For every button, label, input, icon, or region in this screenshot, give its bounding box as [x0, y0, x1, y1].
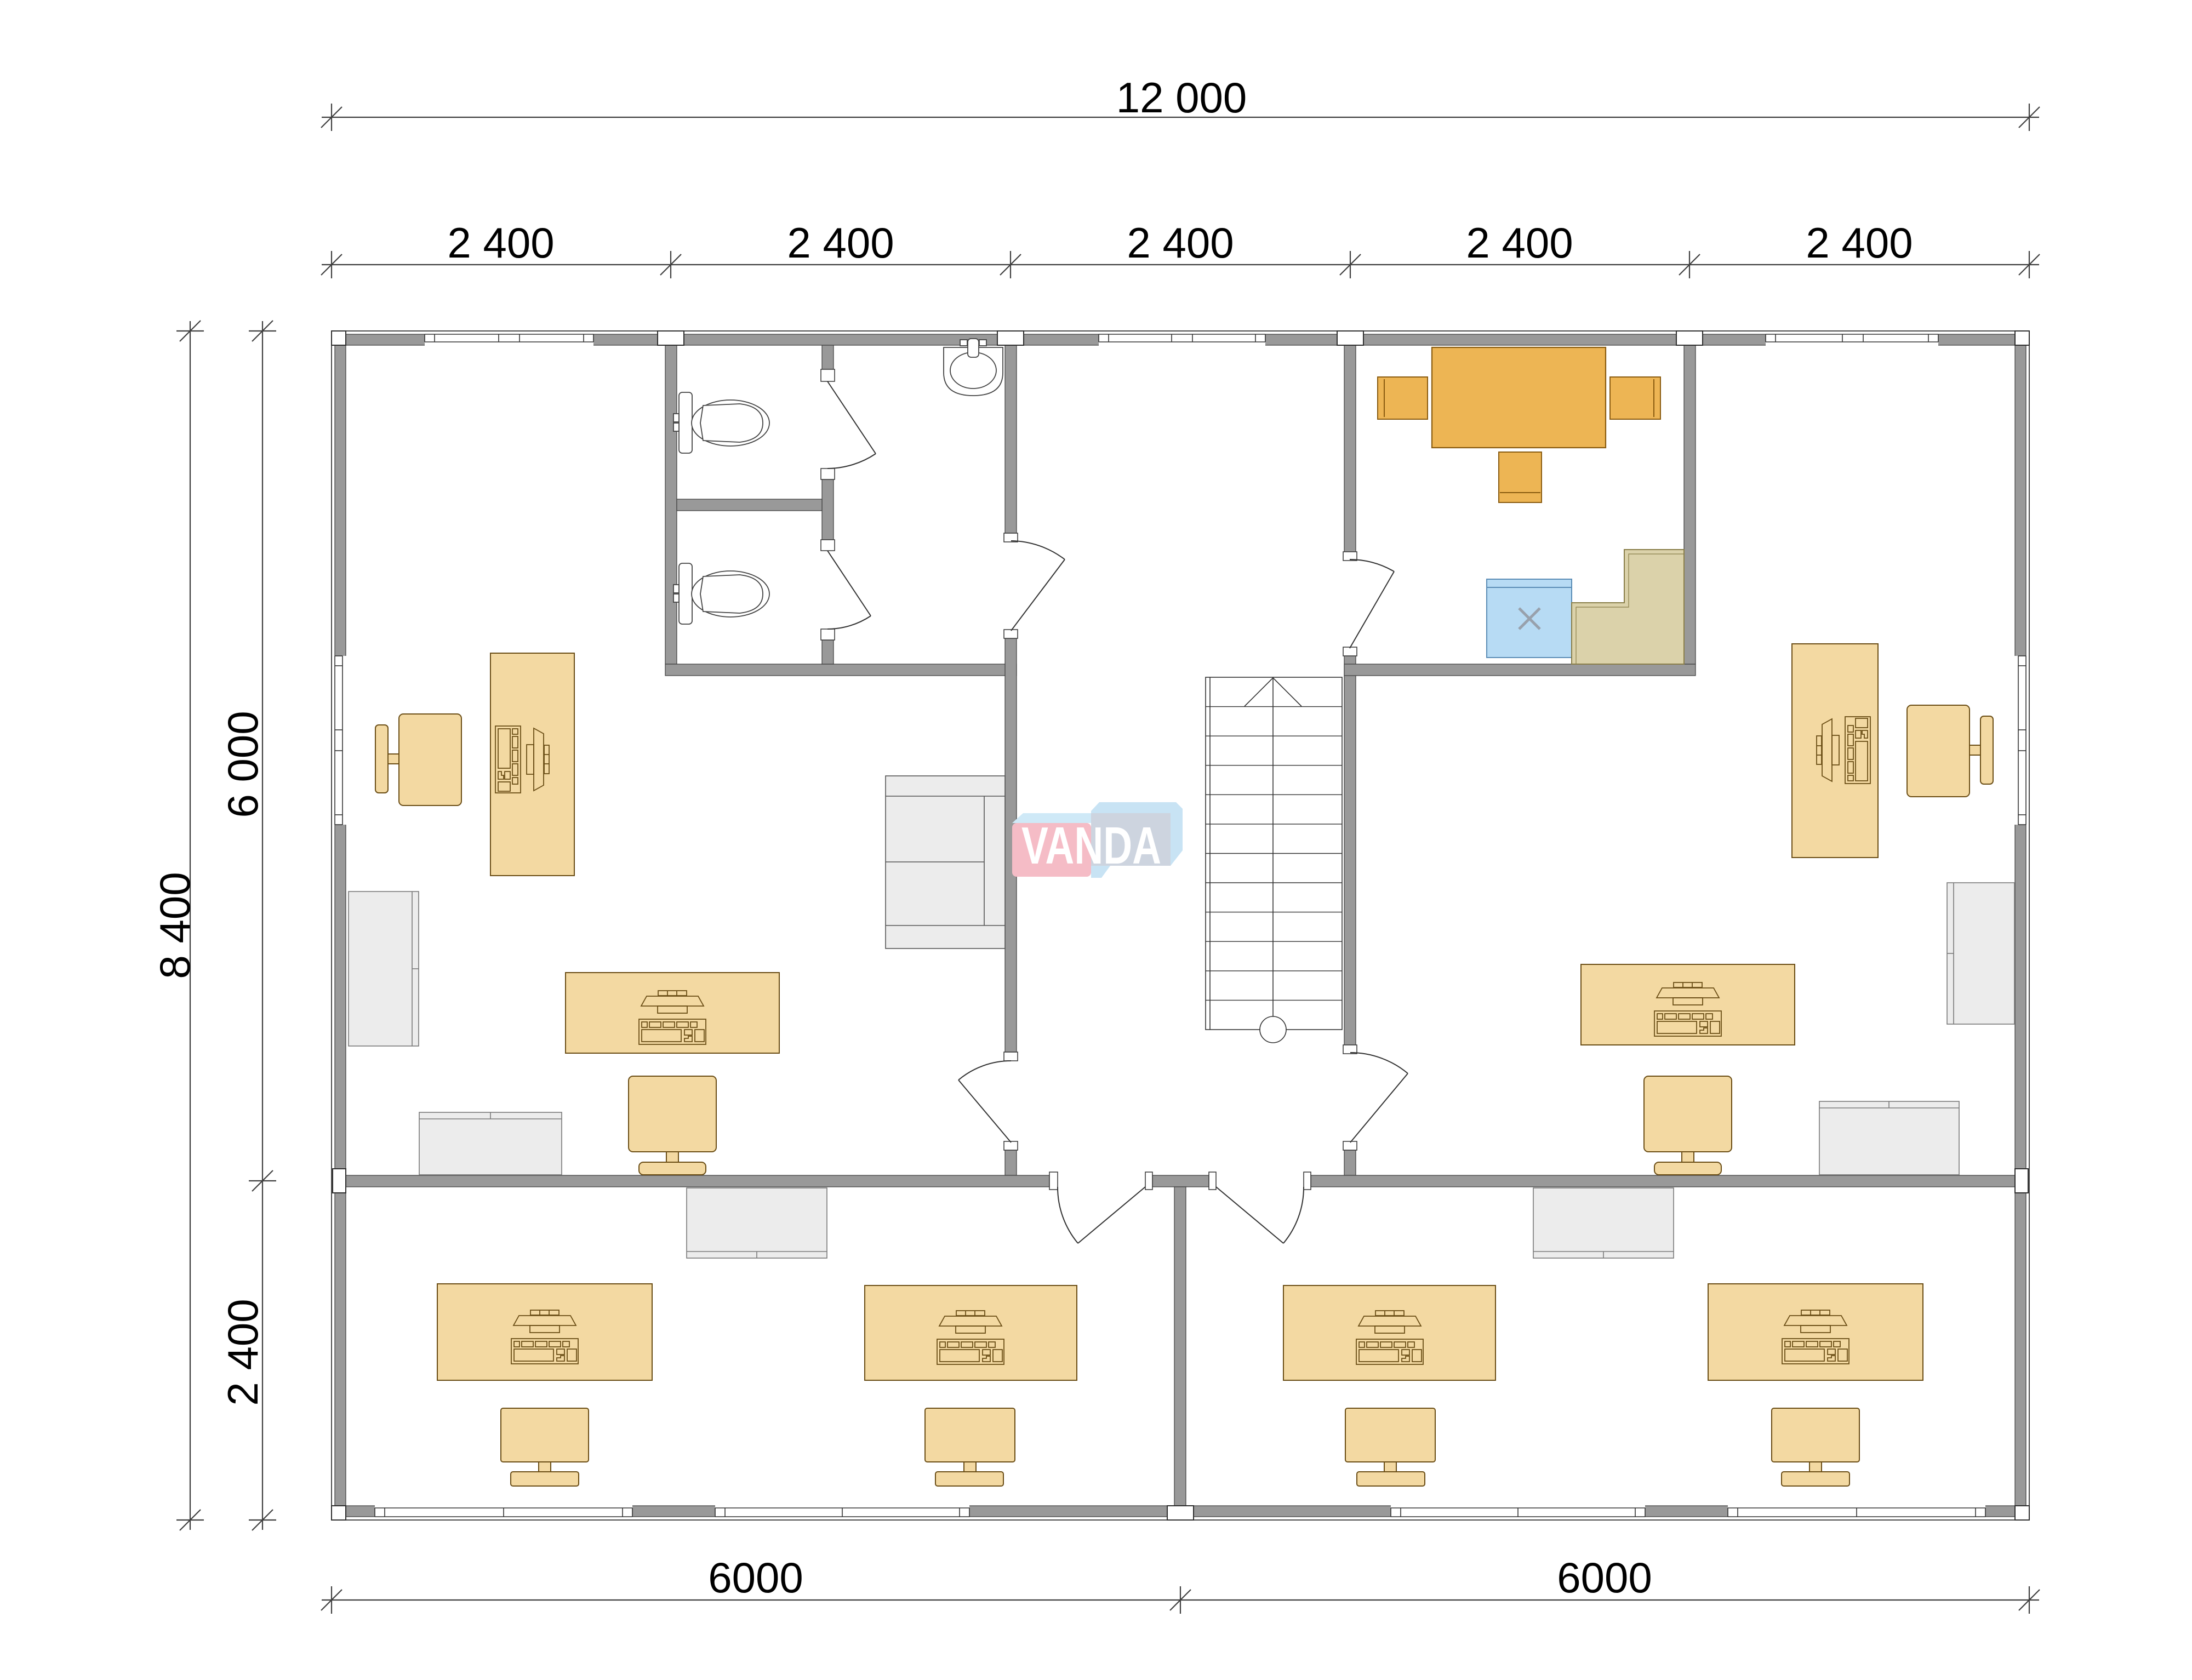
svg-text:2 400: 2 400 [219, 1299, 267, 1405]
svg-text:6000: 6000 [1557, 1553, 1652, 1602]
svg-text:6 000: 6 000 [219, 711, 267, 818]
svg-text:2 400: 2 400 [1466, 219, 1573, 267]
svg-text:2 400: 2 400 [447, 219, 554, 267]
svg-text:12 000: 12 000 [1116, 73, 1247, 122]
svg-text:2 400: 2 400 [1806, 219, 1913, 267]
svg-text:6000: 6000 [708, 1553, 803, 1602]
svg-text:VANDA: VANDA [1021, 816, 1161, 875]
svg-text:2 400: 2 400 [787, 219, 894, 267]
svg-text:8 400: 8 400 [151, 872, 199, 979]
svg-text:2 400: 2 400 [1127, 219, 1234, 267]
